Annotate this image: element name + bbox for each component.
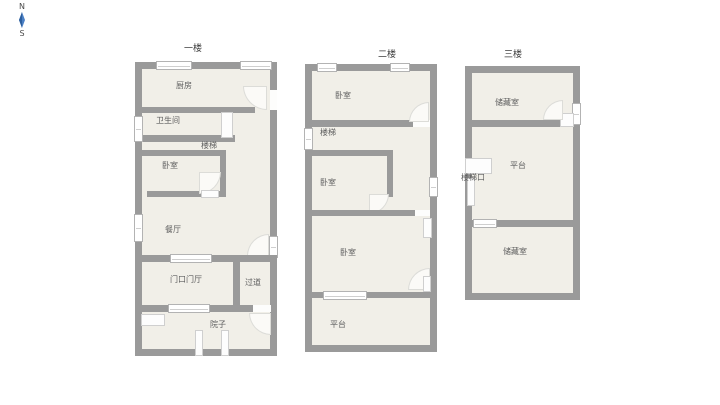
wall xyxy=(430,64,437,352)
wall xyxy=(135,349,277,356)
window xyxy=(429,177,438,197)
door-leaf xyxy=(423,276,431,292)
window xyxy=(323,291,367,300)
room-label-bedroom: 卧室 xyxy=(162,161,178,170)
window xyxy=(134,214,143,242)
door-leaf xyxy=(467,178,475,206)
room-label-entry: 门口门厅 xyxy=(170,275,202,284)
wall xyxy=(305,345,437,352)
room-label-storage: 储藏室 xyxy=(503,247,527,256)
floor2-plan: 卧室 楼梯 卧室 卧室 平台 xyxy=(305,64,437,352)
window xyxy=(156,61,192,70)
window xyxy=(168,304,210,313)
room-label-corridor: 过道 xyxy=(245,278,261,287)
room-label-dining: 餐厅 xyxy=(165,225,181,234)
room-label-terrace: 平台 xyxy=(510,161,526,170)
room-label-bedroom: 卧室 xyxy=(320,178,336,187)
door-leaf xyxy=(141,314,165,326)
floor1-title: 一楼 xyxy=(184,44,202,54)
floor2-title: 二楼 xyxy=(378,50,396,60)
room-label-stairs: 楼梯 xyxy=(320,128,336,137)
floorplan-canvas: N S 一楼 二楼 三楼 xyxy=(0,0,720,405)
door-arc xyxy=(249,313,271,335)
window xyxy=(304,128,313,150)
room-label-bedroom: 卧室 xyxy=(335,91,351,100)
window xyxy=(240,61,272,70)
gate-post xyxy=(221,330,229,356)
wall xyxy=(465,120,560,127)
room-label-bedroom: 卧室 xyxy=(340,248,356,257)
compass: N S xyxy=(12,2,32,38)
room-label-yard: 院子 xyxy=(210,320,226,329)
wall xyxy=(305,150,393,156)
door-opening xyxy=(253,305,271,312)
wall xyxy=(573,66,580,300)
room-label-stairs: 楼梯 xyxy=(201,141,217,150)
door-arc xyxy=(247,234,269,256)
wall xyxy=(465,66,580,73)
wall xyxy=(305,120,413,127)
door-leaf xyxy=(221,112,233,138)
floor3-plan: 储藏室 平台 楼梯口 储藏室 xyxy=(465,66,580,300)
wall xyxy=(305,64,312,352)
wall xyxy=(142,150,226,156)
door-arc xyxy=(409,102,429,122)
room-label-stair-entry: 楼梯口 xyxy=(461,173,485,182)
room-label-terrace: 平台 xyxy=(330,320,346,329)
door-opening xyxy=(270,90,277,110)
window xyxy=(317,63,337,72)
floor1-plan: 厨房 卫生间 楼梯 卧室 餐厅 门口门厅 过道 院子 xyxy=(135,62,277,356)
room-label-kitchen: 厨房 xyxy=(176,81,192,90)
window xyxy=(473,219,497,228)
wall xyxy=(135,107,255,113)
wall xyxy=(387,150,393,197)
stair-entry-notch xyxy=(465,158,492,174)
window xyxy=(134,116,143,142)
wall xyxy=(465,293,580,300)
wall xyxy=(135,135,235,142)
compass-south-label: S xyxy=(12,29,32,38)
window xyxy=(170,254,212,263)
door-leaf xyxy=(423,218,432,238)
door-leaf xyxy=(201,190,219,198)
door-arc xyxy=(543,100,563,120)
door-opening xyxy=(415,210,430,216)
floor3-title: 三楼 xyxy=(504,50,522,60)
compass-needle-icon xyxy=(17,12,27,28)
gate-post xyxy=(195,330,203,356)
room-label-storage: 储藏室 xyxy=(495,98,519,107)
window xyxy=(390,63,410,72)
compass-north-label: N xyxy=(12,2,32,11)
wall xyxy=(305,210,415,216)
room-label-bathroom: 卫生间 xyxy=(156,116,180,125)
